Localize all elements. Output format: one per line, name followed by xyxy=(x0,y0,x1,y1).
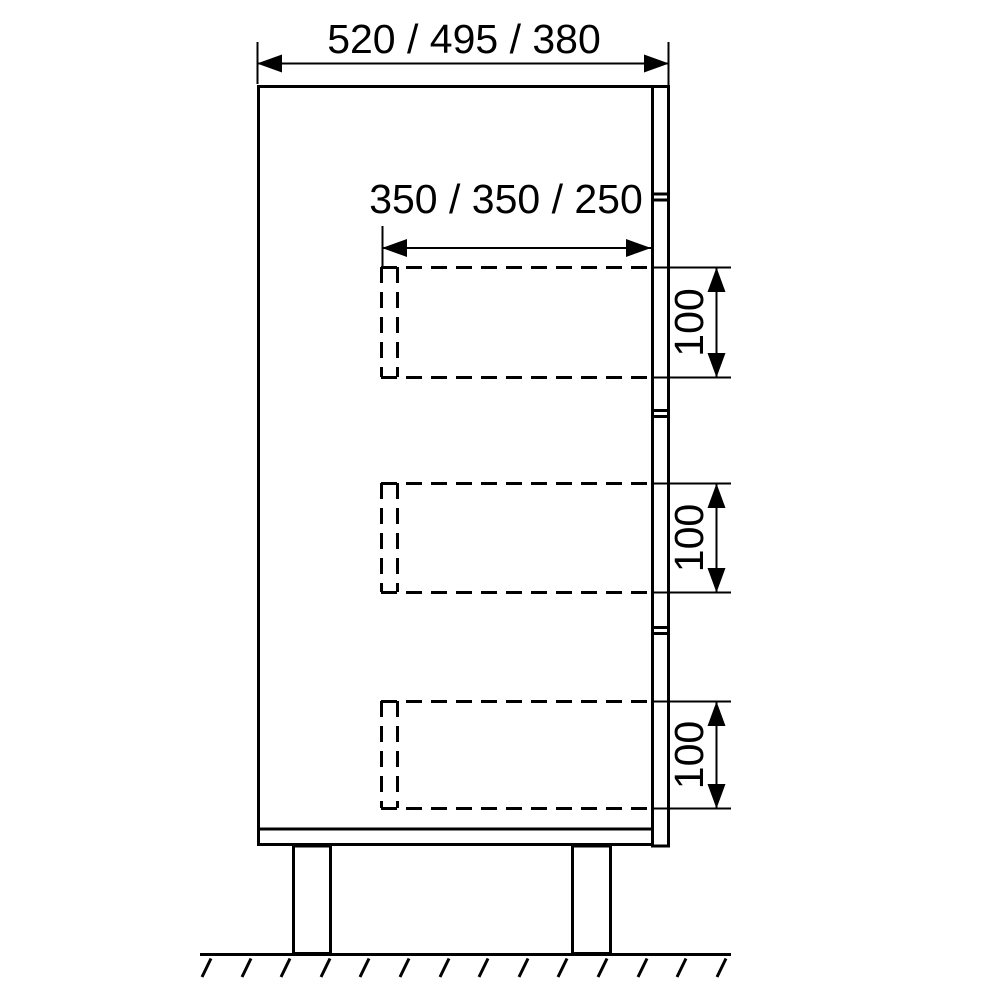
ground xyxy=(200,955,731,978)
drawer-3-dashed-outline xyxy=(381,701,652,809)
cabinet-technical-drawing: 520 / 495 / 380 350 / 350 / 250 xyxy=(0,0,1000,1000)
arrowhead-right-icon xyxy=(626,239,651,257)
drawing-canvas: 520 / 495 / 380 350 / 350 / 250 xyxy=(0,0,1000,1000)
drawer-2-height-dimension-label: 100 xyxy=(666,504,712,572)
ground-hatch xyxy=(638,959,647,978)
drawer-2-height-dimension: 100 xyxy=(653,484,732,593)
leg-right xyxy=(573,846,611,954)
overall-width-dimension: 520 / 495 / 380 xyxy=(257,16,669,85)
ground-hatch xyxy=(519,959,528,978)
drawer-depth-dimension: 350 / 350 / 250 xyxy=(369,176,651,269)
drawer-3-height-dimension-label: 100 xyxy=(666,721,712,789)
ground-hatch xyxy=(677,959,686,978)
arrowhead-left-icon xyxy=(382,239,407,257)
drawer-depth-dimension-label: 350 / 350 / 250 xyxy=(369,176,643,222)
overall-width-dimension-label: 520 / 495 / 380 xyxy=(327,16,601,62)
drawer-1-height-dimension-label: 100 xyxy=(666,288,712,356)
drawer-3-height-dimension: 100 xyxy=(653,702,732,809)
ground-hatch xyxy=(202,959,211,978)
drawer-1-dashed-outline xyxy=(381,267,652,378)
ground-hatch xyxy=(717,959,726,978)
ground-hatch xyxy=(360,959,369,978)
ground-hatch xyxy=(321,959,330,978)
arrowhead-right-icon xyxy=(644,55,669,73)
ground-hatch xyxy=(598,959,607,978)
ground-hatch xyxy=(242,959,251,978)
ground-hatch xyxy=(558,959,567,978)
ground-hatch xyxy=(479,959,488,978)
arrowhead-left-icon xyxy=(257,55,282,73)
cabinet-legs xyxy=(294,846,611,954)
ground-hatch xyxy=(440,959,449,978)
ground-hatch xyxy=(281,959,290,978)
leg-left xyxy=(294,846,331,954)
drawer-1-height-dimension: 100 xyxy=(653,268,732,378)
drawer-2-dashed-outline xyxy=(381,483,652,593)
ground-hatch xyxy=(400,959,409,978)
